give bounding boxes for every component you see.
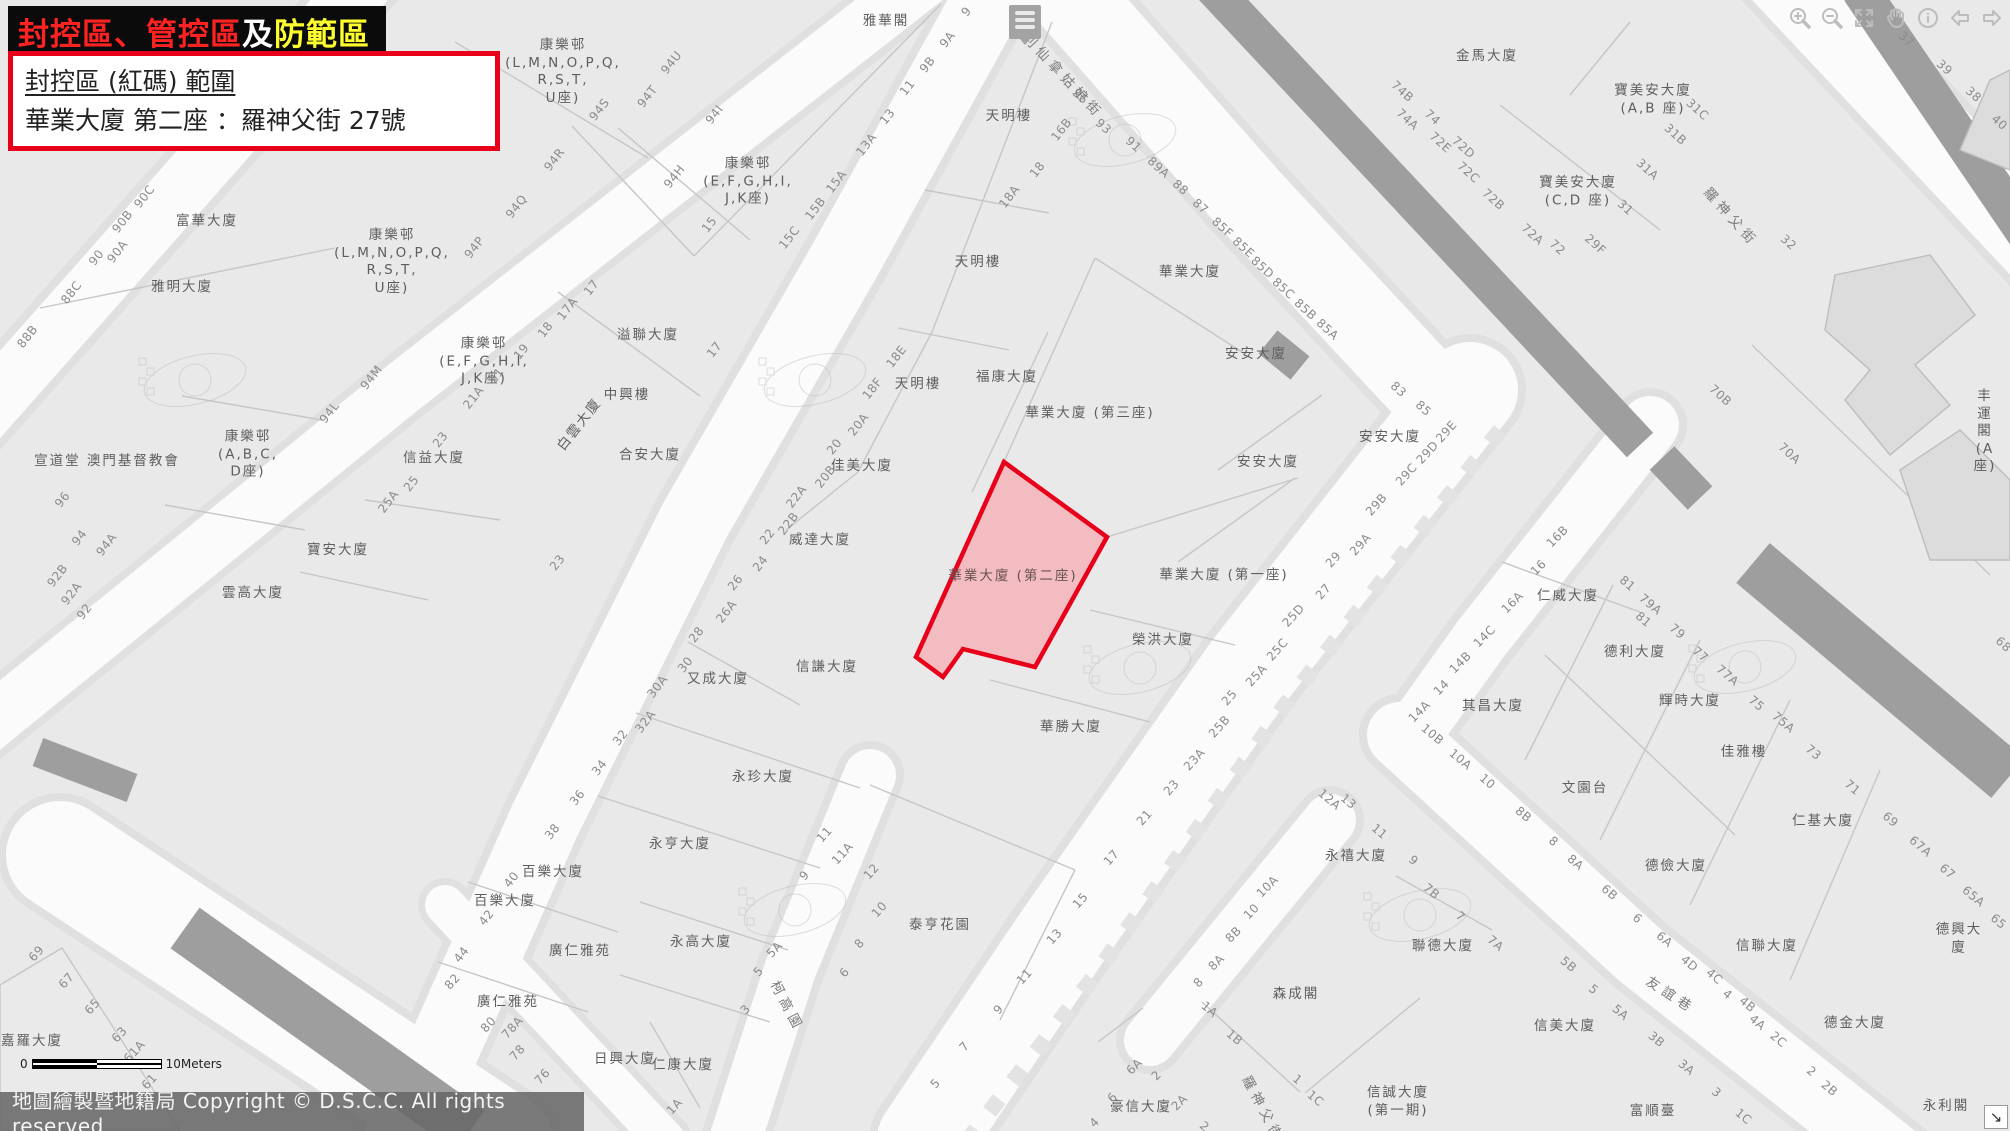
zoom-out-icon[interactable]	[1819, 5, 1844, 30]
copyright-bar: 地圖繪製暨地籍局 Copyright © D.S.C.C. All rights…	[0, 1092, 584, 1131]
scale-bar-graphic	[32, 1059, 162, 1069]
title-red-zone-text: 封控區、管控區	[18, 17, 242, 53]
map-toolbar	[1787, 5, 2004, 30]
scale-zero: 0	[20, 1057, 28, 1071]
info-icon[interactable]	[1915, 5, 1940, 30]
legend-heading: 封控區 (紅碼) 範圍	[25, 62, 483, 98]
title-and-text: 及	[242, 17, 274, 53]
bus-stop-icon	[1006, 3, 1044, 55]
lockdown-legend-box: 封控區 (紅碼) 範圍 華業大廈 第二座 ：羅神父街 27號	[8, 51, 500, 151]
scale-bar: 010Meters	[20, 1057, 222, 1071]
map-canvas[interactable]	[0, 0, 2010, 1131]
fullscreen-icon[interactable]	[1851, 5, 1876, 30]
legend-address: 華業大廈 第二座 ：羅神父街 27號	[25, 101, 483, 137]
map-viewer: 雅華閣康樂邨 (L,M,N,O,P,Q, R,S,T, U座)金馬大廈寶美安大廈…	[0, 0, 2010, 1131]
title-prevention-zone-text: 防範區	[274, 17, 370, 53]
zoom-in-icon[interactable]	[1787, 5, 1812, 30]
next-view-icon[interactable]	[1979, 5, 2004, 30]
copyright-text: 地圖繪製暨地籍局 Copyright © D.S.C.C. All rights…	[12, 1085, 584, 1131]
resize-corner-icon[interactable]: ↘	[1984, 1105, 2008, 1129]
previous-view-icon[interactable]	[1947, 5, 1972, 30]
scale-max: 10Meters	[166, 1057, 222, 1071]
pan-icon[interactable]	[1883, 5, 1908, 30]
